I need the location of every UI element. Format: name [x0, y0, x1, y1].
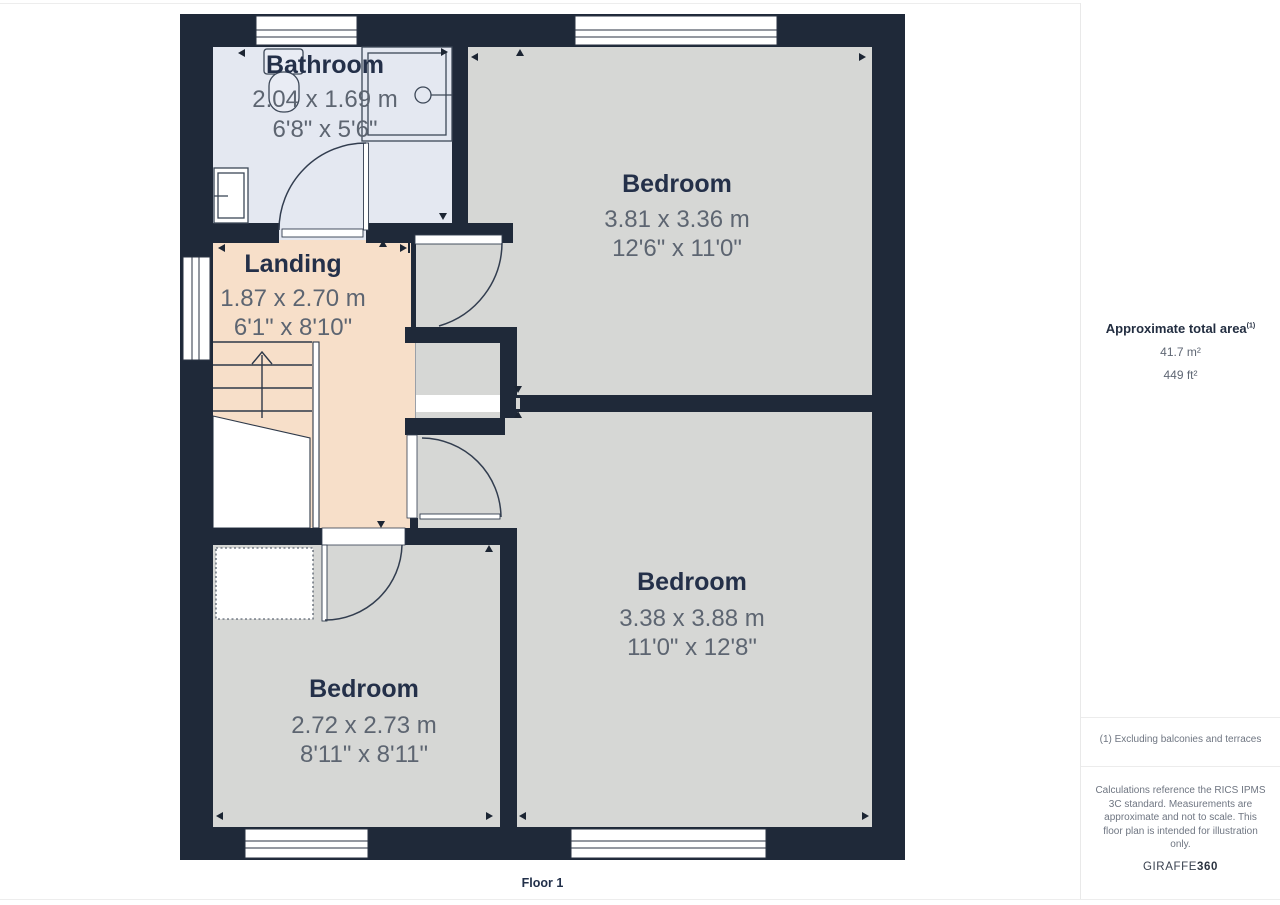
sidebar: Approximate total area(1) 41.7 m² 449 ft…: [1080, 3, 1280, 899]
door-threshold: [415, 235, 502, 244]
room-dims-ft-bedroom-bottom-right: 11'0" x 12'8": [627, 634, 757, 661]
window-top-right: [575, 16, 777, 45]
area-title-text: Approximate total area: [1106, 321, 1247, 336]
brand-logo: GIRAFFE360: [1081, 861, 1280, 873]
wall-between-bedrooms: [500, 395, 872, 412]
wall-bathroom-bottom-right: [366, 223, 513, 236]
room-fills: [213, 47, 872, 827]
room-label-bathroom: Bathroom: [266, 51, 384, 79]
room-label-bedroom-bottom-right: Bedroom: [637, 568, 747, 596]
wall-outer-left: [180, 14, 213, 860]
wall-bathroom-bottom-left: [213, 223, 279, 243]
window-bottom-left: [245, 829, 368, 858]
wall-bathroom-right: [452, 14, 468, 243]
room-dims-ft-landing: 6'1" x 8'10": [234, 314, 352, 341]
area-title: Approximate total area(1): [1081, 321, 1280, 336]
room-label-landing: Landing: [244, 250, 341, 278]
window-left: [183, 257, 210, 360]
room-label-bedroom-top-right: Bedroom: [622, 170, 732, 198]
door-threshold: [407, 435, 417, 518]
area-summary: Approximate total area(1) 41.7 m² 449 ft…: [1081, 321, 1280, 382]
area-footnote: (1) Excluding balconies and terraces: [1091, 734, 1270, 745]
sink: [214, 168, 248, 223]
wall-bedroom2-left: [500, 545, 517, 827]
room-dims-m-bedroom-bottom-right: 3.38 x 3.88 m: [619, 605, 764, 632]
disclaimer-text: Calculations reference the RICS IPMS 3C …: [1095, 784, 1266, 852]
room-dims-m-bedroom-bottom-left: 2.72 x 2.73 m: [291, 712, 436, 739]
area-title-superscript: (1): [1247, 323, 1256, 330]
wall-bedroom3-top-left: [180, 528, 322, 545]
page-bottom-border: [0, 899, 1280, 900]
wall-bedroom3-top-right: [405, 528, 517, 545]
area-value-imperial: 449 ft²: [1081, 368, 1280, 382]
sidebar-divider: [1081, 766, 1280, 767]
floorplan-page: Bathroom 2.04 x 1.69 m 6'8" x 5'6" Landi…: [0, 0, 1280, 905]
room-dims-ft-bathroom: 6'8" x 5'6": [273, 116, 378, 143]
door-leaf: [322, 545, 327, 621]
door-leaf: [420, 514, 500, 519]
room-dims-m-landing: 1.87 x 2.70 m: [220, 285, 365, 312]
floor-label: Floor 1: [180, 876, 905, 890]
room-dims-ft-bedroom-top-right: 12'6" x 11'0": [612, 235, 742, 262]
stair-rail: [313, 342, 319, 528]
door-leaf: [364, 143, 369, 230]
room-dims-ft-bedroom-bottom-left: 8'11" x 8'11": [300, 741, 428, 768]
wall-niche-top: [405, 327, 517, 343]
area-value-metric: 41.7 m²: [1081, 345, 1280, 359]
room-label-bedroom-bottom-left: Bedroom: [309, 675, 419, 703]
room-dims-m-bathroom: 2.04 x 1.69 m: [252, 86, 397, 113]
door-threshold: [322, 528, 405, 545]
brand-suffix: 360: [1197, 861, 1218, 873]
wall-measure-notch: [516, 398, 520, 409]
room-dims-m-bedroom-top-right: 3.81 x 3.36 m: [604, 206, 749, 233]
window-top-left: [256, 16, 357, 45]
wall-landing-bedroom1: [411, 243, 416, 327]
brand-name: GIRAFFE: [1143, 861, 1197, 873]
wardrobe: [216, 548, 313, 619]
wall-outer-right: [872, 14, 905, 860]
sidebar-divider: [1081, 717, 1280, 718]
wall-niche-bottom: [405, 418, 505, 435]
window-bottom-right: [571, 829, 766, 858]
